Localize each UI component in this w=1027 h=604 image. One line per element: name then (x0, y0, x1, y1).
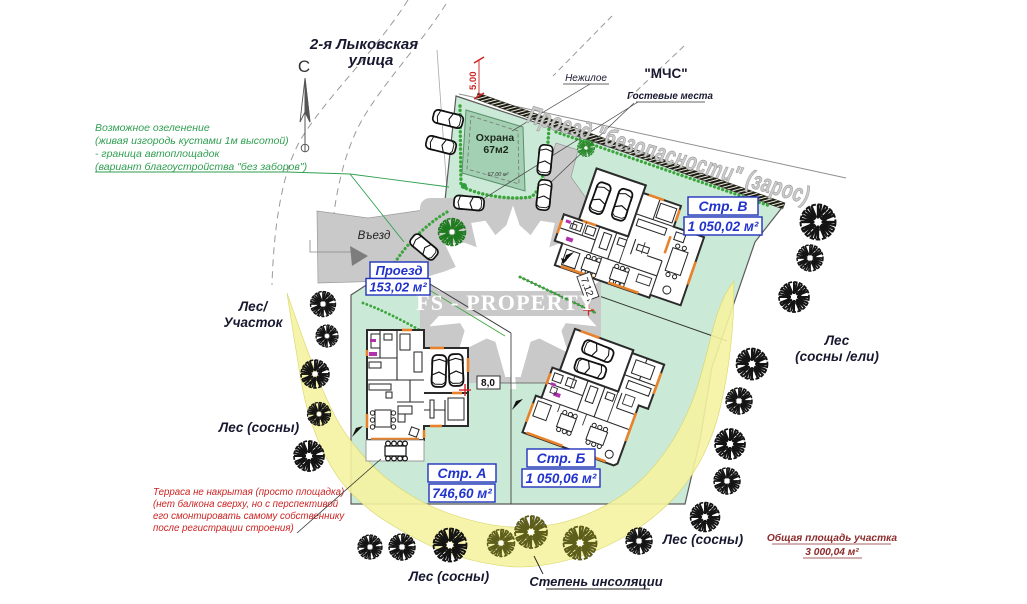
svg-text:Гостевые места: Гостевые места (627, 91, 713, 102)
svg-text:Лес (сосны): Лес (сосны) (408, 569, 490, 584)
svg-text:улица: улица (348, 52, 394, 69)
svg-text:С: С (298, 57, 310, 76)
svg-text:Стр. Б: Стр. Б (537, 450, 586, 466)
svg-text:1 050,02 м²: 1 050,02 м² (688, 219, 759, 234)
svg-text:Возможное озеленение: Возможное озеленение (95, 122, 210, 134)
svg-text:Терраса не накрытая (просто пл: Терраса не накрытая (просто площадка) (153, 487, 344, 498)
svg-text:его смонтировать самому собств: его смонтировать самому собственнику (153, 511, 345, 522)
svg-text:8,0: 8,0 (481, 378, 495, 389)
svg-text:67м2: 67м2 (483, 144, 508, 156)
svg-text:746,60 м²: 746,60 м² (432, 486, 492, 501)
svg-text:Нежилое: Нежилое (565, 73, 607, 84)
svg-text:Проезд: Проезд (376, 263, 423, 278)
svg-text:Участок: Участок (224, 315, 284, 330)
svg-text:1 050,06 м²: 1 050,06 м² (526, 471, 597, 486)
svg-text:"МЧС": "МЧС" (644, 66, 687, 81)
svg-text:- граница автоплощадок: - граница автоплощадок (95, 148, 221, 160)
svg-text:Лес (сосны): Лес (сосны) (662, 532, 744, 547)
svg-text:Степень инсоляции: Степень инсоляции (529, 574, 662, 589)
svg-text:FS - PROPERTY: FS - PROPERTY (416, 290, 596, 315)
svg-text:(нет балкона сверху, но с перс: (нет балкона сверху, но с перспективой (153, 499, 339, 510)
svg-text:Стр. В: Стр. В (699, 198, 748, 214)
svg-text:153,02 м²: 153,02 м² (369, 280, 427, 295)
svg-text:3 000,04 м²: 3 000,04 м² (805, 547, 859, 558)
svg-text:(вариант благоустройства "без: (вариант благоустройства "без заборов") (95, 161, 307, 173)
svg-text:Лес/: Лес/ (238, 299, 268, 314)
svg-text:Охрана: Охрана (476, 132, 515, 144)
svg-text:Лес: Лес (824, 333, 850, 348)
svg-text:Общая площадь участка: Общая площадь участка (767, 532, 898, 544)
svg-text:Стр. А: Стр. А (438, 465, 487, 481)
svg-text:Въезд: Въезд (358, 230, 391, 242)
svg-text:2-я Лыковская: 2-я Лыковская (309, 36, 418, 53)
svg-text:(живая изгородь кустами 1м выс: (живая изгородь кустами 1м высотой) (95, 135, 289, 147)
svg-text:(сосны /ели): (сосны /ели) (795, 349, 879, 364)
svg-text:5.00: 5.00 (468, 72, 479, 91)
svg-text:Лес (сосны): Лес (сосны) (218, 420, 300, 435)
svg-text:67,00 м²: 67,00 м² (488, 172, 509, 178)
svg-text:после регистрации строения): после регистрации строения) (153, 523, 294, 534)
